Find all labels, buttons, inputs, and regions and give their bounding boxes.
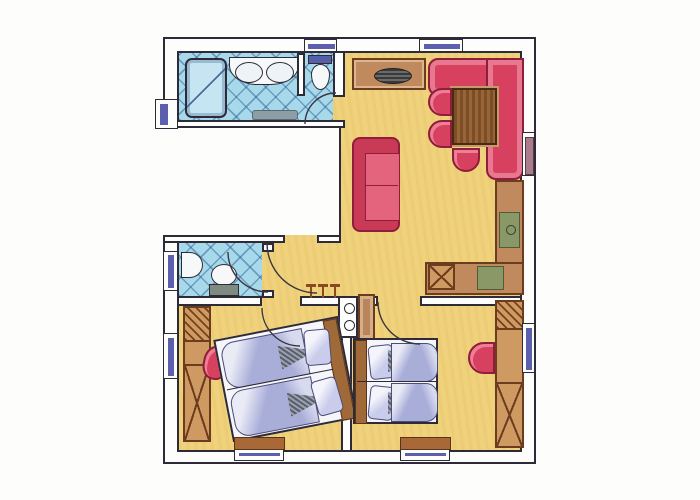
window-glass — [405, 453, 446, 456]
radiator-strip — [160, 104, 168, 125]
basin-icon — [235, 62, 263, 83]
window-bedroom2-bottom — [400, 437, 450, 461]
wall-wc-east-lower — [262, 290, 274, 298]
wall-bathroom-east — [333, 51, 345, 97]
dish-icon — [374, 68, 412, 84]
stairwell-recess — [156, 128, 341, 235]
dining-table — [452, 88, 497, 145]
sofa — [352, 137, 400, 232]
wall-wc-east-upper — [262, 243, 274, 252]
window-glass — [239, 453, 280, 456]
duct-circle-icon — [344, 320, 355, 331]
bathtub — [185, 58, 227, 118]
wardrobe-x-panel — [497, 382, 522, 446]
sideboard — [352, 58, 426, 90]
wardrobe-shelf-hatch — [497, 302, 522, 330]
pillow — [303, 328, 332, 366]
window-bedroom2-right — [522, 323, 535, 373]
toilet-cistern-icon — [308, 55, 332, 64]
basin-icon — [266, 62, 294, 83]
window-glass — [424, 44, 460, 49]
window-glass — [526, 328, 532, 370]
sofa-cushions — [365, 153, 400, 221]
duvet — [391, 383, 438, 422]
bed-seam — [357, 381, 437, 382]
niche-radiator-left — [155, 99, 178, 129]
window-glass — [168, 255, 174, 288]
toilet-nook-partition — [297, 53, 305, 96]
window-top-2 — [419, 39, 463, 52]
double-bed-bedroom2 — [353, 338, 438, 424]
bath-mat — [252, 110, 298, 120]
tap-icon — [506, 225, 516, 235]
vanity-double-basin — [229, 57, 299, 85]
sofa-seam — [365, 185, 398, 186]
kitchen-sink-icon — [499, 212, 520, 248]
radiator-strip — [525, 137, 534, 175]
window-sill — [400, 437, 451, 450]
wall-bedroom1-north-left — [177, 296, 262, 306]
toilet-icon — [211, 264, 237, 286]
chair-icon — [468, 342, 495, 374]
duct-circle-icon — [344, 303, 355, 314]
appliance-duct-icon — [428, 264, 455, 290]
window-wc — [163, 251, 178, 291]
window-glass — [308, 44, 335, 49]
window-glass — [168, 338, 174, 376]
hall-cabinet — [358, 294, 375, 340]
toilet-cistern-icon — [209, 284, 239, 296]
wall-recess-south-right — [317, 235, 341, 243]
stove-icon — [477, 266, 504, 290]
window-bedroom1-left — [163, 333, 178, 379]
coat-hook-icon — [318, 284, 328, 298]
wardrobe-shelf-hatch — [185, 308, 209, 342]
window-top-1 — [304, 39, 337, 52]
wardrobe-bedroom2 — [495, 300, 524, 448]
wall-recess-south-left — [163, 235, 285, 243]
coat-hook-icon — [306, 284, 316, 298]
window-sill — [234, 437, 285, 450]
duvet — [391, 343, 438, 382]
headboard — [355, 340, 367, 424]
chair-icon — [428, 120, 452, 148]
window-bedroom1-bottom — [234, 437, 284, 461]
niche-radiator-right — [522, 132, 535, 176]
chair-icon — [428, 88, 452, 116]
wall-bathroom-south — [163, 120, 345, 128]
